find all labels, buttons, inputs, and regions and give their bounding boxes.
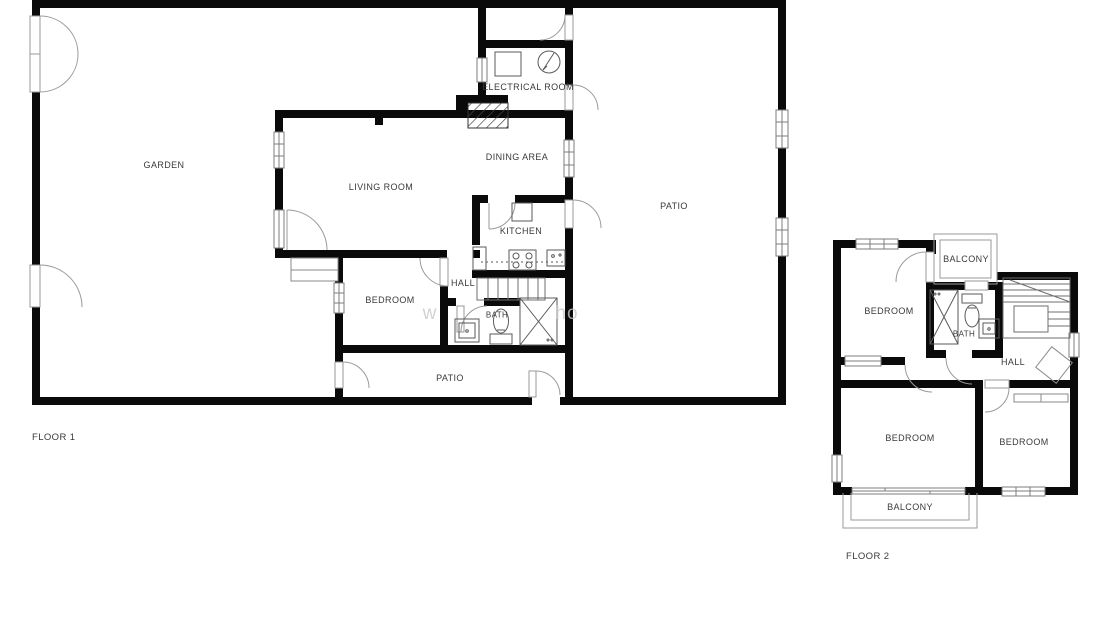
wardrobe-icon <box>1014 394 1068 402</box>
door-icon <box>896 252 934 282</box>
room-label-bedroom-f1: BEDROOM <box>365 295 414 305</box>
room-label-bedroom-right-f2: BEDROOM <box>999 437 1048 447</box>
water-heater-icon <box>468 103 508 128</box>
room-label-hall-f2: HALL <box>1001 357 1025 367</box>
garden-steps-icon <box>291 258 338 281</box>
room-label-hall-f1: HALL <box>451 278 475 288</box>
room-label-kitchen: KITCHEN <box>500 226 542 236</box>
window-icon <box>832 455 842 482</box>
door-icon <box>287 210 327 250</box>
window-icon <box>776 110 788 148</box>
stove-icon <box>509 250 536 270</box>
room-label-balcony-bottom: BALCONY <box>887 502 933 512</box>
floor2-stairs <box>1003 278 1070 338</box>
electrical-panel-icon <box>495 52 521 76</box>
floor-plan-canvas: GARDEN LIVING ROOM DINING AREA ELECTRICA… <box>0 0 1110 626</box>
window-icon <box>274 210 284 248</box>
room-label-bedroom-left-f2: BEDROOM <box>885 433 934 443</box>
hall-furniture-icon <box>1036 347 1072 383</box>
shower-icon <box>520 298 557 345</box>
door-icon <box>965 281 988 290</box>
room-label-dining-area: DINING AREA <box>486 152 548 162</box>
floor2-title: FLOOR 2 <box>846 551 889 562</box>
room-label-balcony-top: BALCONY <box>943 254 989 264</box>
electrical-meter-icon <box>538 51 560 73</box>
window-icon <box>564 140 574 177</box>
window-icon <box>477 58 487 82</box>
door-icon <box>420 258 448 286</box>
double-door-icon <box>30 16 78 92</box>
door-icon <box>30 265 82 307</box>
room-label-bath-f2: BATH <box>953 330 975 339</box>
room-label-bedroom-top-f2: BEDROOM <box>864 306 913 316</box>
door-icon <box>565 200 601 228</box>
door-icon <box>529 371 560 397</box>
room-label-patio-bottom: PATIO <box>436 373 464 383</box>
room-label-patio-right: PATIO <box>660 201 688 211</box>
room-label-bath-f1: BATH <box>486 311 508 320</box>
room-label-electrical-room: ELECTRICAL ROOM <box>482 82 574 92</box>
watermark-fragment: w <box>423 303 438 325</box>
stairs-icon <box>1003 278 1070 338</box>
window-icon <box>776 218 788 256</box>
kitchen-counter-icon <box>473 203 563 270</box>
floor1-doors <box>30 15 601 397</box>
window-icon <box>856 239 898 249</box>
window-icon <box>1002 487 1045 496</box>
room-label-living-room: LIVING ROOM <box>349 182 413 192</box>
door-icon <box>985 380 1009 412</box>
window-icon <box>845 356 881 366</box>
watermark-fragment: ho <box>555 303 578 325</box>
stairs-icon <box>477 278 545 300</box>
sliding-window-icon <box>852 488 965 494</box>
kitchen-sink-icon <box>547 250 565 266</box>
window-icon <box>274 132 284 168</box>
window-icon <box>334 283 344 313</box>
door-icon <box>540 15 573 40</box>
door-icon <box>335 362 369 388</box>
floor1-title: FLOOR 1 <box>32 432 75 443</box>
room-label-garden: GARDEN <box>144 160 185 170</box>
